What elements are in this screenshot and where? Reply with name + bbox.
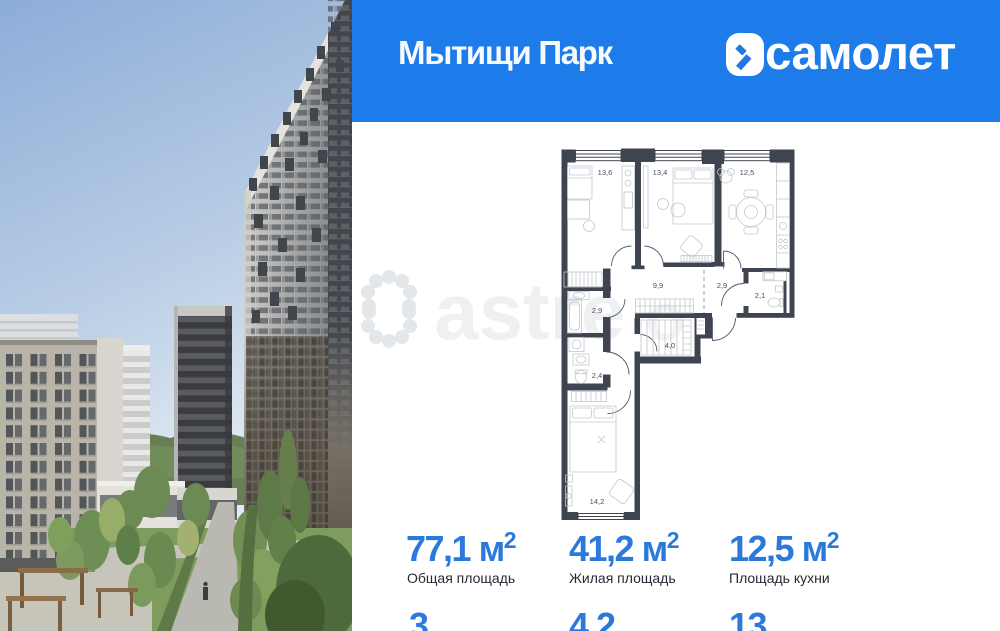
svg-text:12,5: 12,5 — [740, 168, 755, 177]
svg-text:2,4: 2,4 — [592, 371, 603, 380]
svg-text:2,9: 2,9 — [592, 306, 603, 315]
svg-text:4,0: 4,0 — [665, 341, 676, 350]
svg-text:14,2: 14,2 — [590, 497, 605, 506]
svg-text:2,9: 2,9 — [717, 281, 728, 290]
svg-text:9,9: 9,9 — [653, 281, 664, 290]
svg-text:13,4: 13,4 — [653, 168, 668, 177]
svg-text:2,1: 2,1 — [755, 291, 766, 300]
svg-text:13,6: 13,6 — [598, 168, 613, 177]
